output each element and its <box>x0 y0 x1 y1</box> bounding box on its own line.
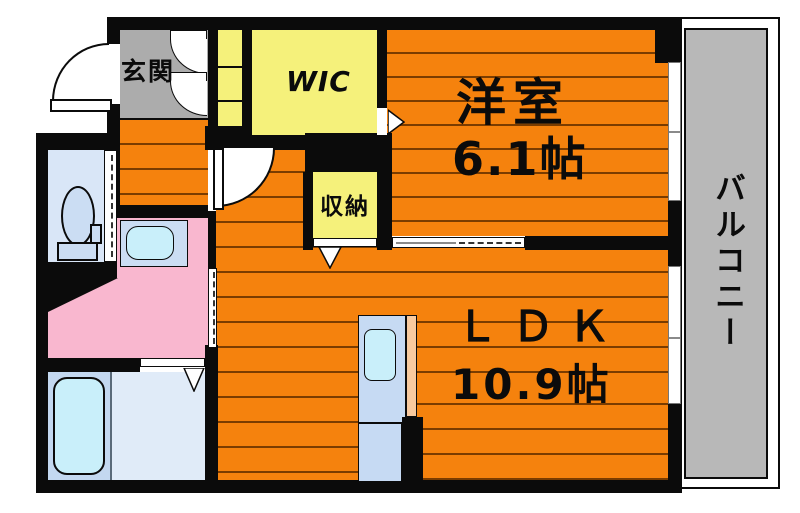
wall-toilet-door-edge <box>117 150 120 205</box>
entrance-shelf <box>218 30 242 126</box>
floor-plan: バルコニー <box>0 0 800 513</box>
wic-label: WIC <box>286 68 351 96</box>
wall-diagonal <box>48 278 118 312</box>
ldk-door-leaf <box>213 148 224 210</box>
toilet-tank-icon <box>57 242 98 261</box>
wall-right-corner <box>655 30 668 63</box>
bathroom-door-swing-marker <box>183 368 205 392</box>
storage-label: 収納 <box>320 196 370 219</box>
wall-under-shelf <box>205 126 252 150</box>
toilet-flush-icon <box>90 224 102 244</box>
bathtub-icon <box>53 377 105 475</box>
wall-genkan-right <box>208 30 218 126</box>
storage-door <box>313 238 377 247</box>
wall-core-mass <box>305 133 392 172</box>
wall-mid-lower <box>205 345 218 480</box>
storage-door-swing-marker <box>318 247 342 269</box>
western-room-label: 洋室 <box>456 78 570 128</box>
shelf-divider-line <box>218 66 242 68</box>
window-western-room <box>668 62 681 201</box>
kitchen-counter-edge-icon <box>406 315 417 417</box>
wall-top <box>107 17 682 30</box>
ldk-size: 10.9帖 <box>451 364 612 406</box>
kitchen-sink-icon <box>364 329 396 381</box>
wall-step <box>36 133 120 150</box>
wic-door-opening <box>377 108 387 135</box>
wall-ldk-east <box>525 236 668 250</box>
sliding-track-dashed <box>459 242 521 244</box>
window-mullion <box>669 337 680 339</box>
window-ldk <box>668 266 681 404</box>
wall-storage-right <box>377 172 392 250</box>
wall-left-lower <box>36 133 48 493</box>
washroom-sliding-door <box>208 268 217 348</box>
kitchen-cabinet-icon <box>358 423 402 482</box>
ldk-label: ＬＤＫ <box>456 306 624 348</box>
partition-sliding-door <box>392 237 525 248</box>
entrance-door-leaf <box>50 99 112 112</box>
wall-wic-right <box>377 30 387 110</box>
western-room-size: 6.1帖 <box>452 136 588 182</box>
sliding-track <box>111 155 113 256</box>
kitchen-wall-block <box>402 417 423 480</box>
wall-mid-upper <box>208 211 216 268</box>
entrance-door-arc <box>52 43 109 101</box>
wall-toilet-bottom <box>36 262 117 278</box>
wall-corridor-bottom <box>115 205 208 218</box>
toilet-sliding-door <box>104 150 117 262</box>
genkan-corridor-step-line <box>120 118 208 120</box>
washbasin-sink-icon <box>126 226 174 260</box>
wall-washroom-bottom <box>36 358 140 372</box>
bathroom-door <box>140 358 205 367</box>
sliding-panel-line <box>396 242 456 244</box>
wall-storage-left <box>303 172 313 250</box>
sliding-track <box>213 272 215 344</box>
genkan-label: 玄関 <box>121 59 175 84</box>
shelf-divider-line <box>218 100 242 102</box>
window-mullion <box>669 131 680 133</box>
wall-shelf-divider <box>242 30 252 126</box>
corridor-floor <box>120 120 208 205</box>
balcony-label: バルコニー <box>704 172 742 352</box>
wic-door-swing-marker <box>388 109 405 135</box>
